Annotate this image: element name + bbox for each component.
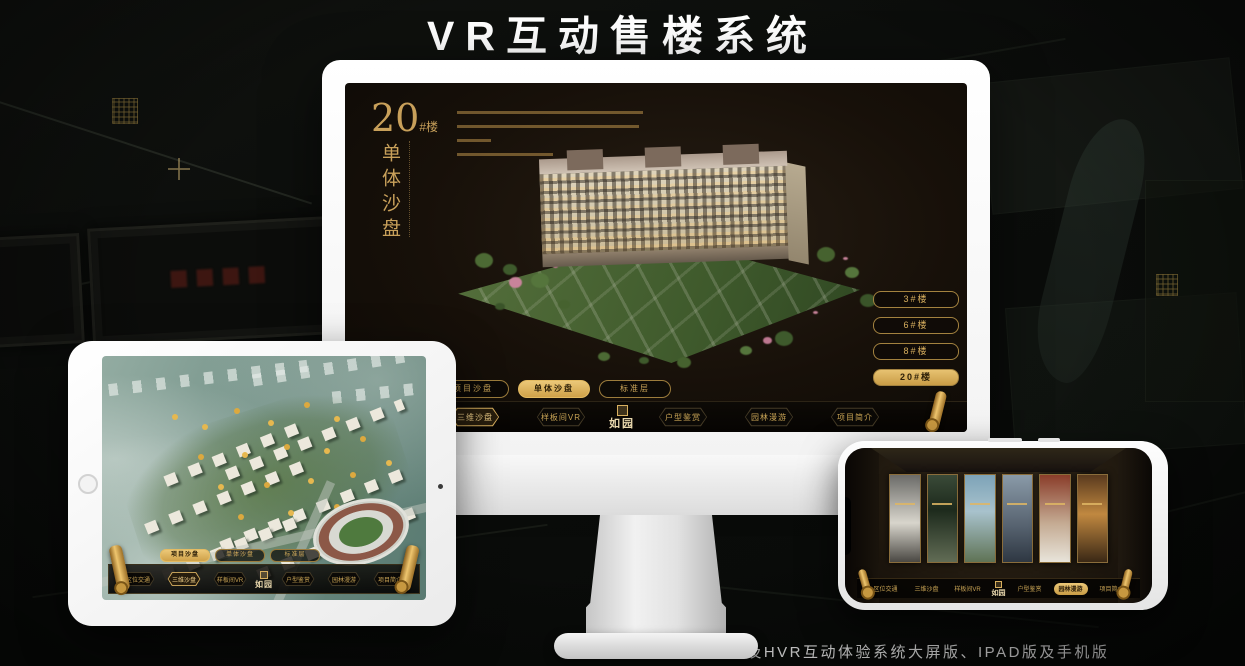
poster-panel[interactable] — [1039, 474, 1071, 563]
view-tab[interactable]: 标准层 — [599, 380, 671, 398]
seal-icon — [260, 571, 268, 579]
brand-logo-text: 如园 — [609, 418, 635, 429]
roof-tower — [645, 146, 682, 167]
view-tab[interactable]: 单体沙盘 — [518, 380, 590, 398]
building-number-badges — [172, 414, 178, 420]
bg-certificate-plaque — [87, 215, 349, 346]
bg-road-line — [0, 98, 312, 205]
menu-item[interactable]: 项目简介 — [827, 407, 883, 427]
plaque-seal-marks — [170, 266, 265, 288]
brand-logo: 如园 — [992, 581, 1006, 596]
garden-bushes — [475, 253, 493, 268]
menu-group-left: 区位交通三维沙盘样板间VR — [119, 572, 249, 587]
menu-item[interactable]: 三维沙盘 — [165, 572, 203, 587]
view-tab[interactable]: 项目沙盘 — [160, 549, 210, 562]
phone-device: 区位交通三维沙盘样板间VR 如园 户型鉴赏园林漫游项目简介 — [838, 441, 1168, 610]
qr-code-icon — [1156, 274, 1178, 296]
menu-item-label: 项目简介 — [837, 412, 873, 423]
heading-divider — [409, 141, 410, 237]
menu-group-right: 户型鉴赏园林漫游项目简介 — [1013, 583, 1129, 595]
poster-panel[interactable] — [964, 474, 996, 563]
floor-button[interactable]: 20#楼 — [873, 369, 959, 386]
monitor-stand-neck — [586, 515, 726, 637]
view-tabs: 项目沙盘单体沙盘标准层 — [437, 380, 671, 398]
menu-item[interactable]: 样板间VR — [951, 583, 985, 595]
menu-item[interactable]: 样板间VR — [211, 572, 249, 587]
menu-item[interactable]: 园林漫游 — [741, 407, 797, 427]
phone-menu-bar: 区位交通三维沙盘样板间VR 如园 户型鉴赏园林漫游项目简介 — [857, 578, 1140, 598]
power-button[interactable] — [1038, 438, 1060, 442]
interior-ceiling-beam — [871, 448, 1126, 472]
menu-item-label: 区位交通 — [873, 584, 897, 593]
ipad-screen-aerial-view[interactable]: 项目沙盘单体沙盘标准层 区位交通三维沙盘样板间VR 如园 户型鉴赏园林漫游项目简… — [102, 356, 426, 600]
menu-item-label: 园林漫游 — [332, 575, 356, 584]
flower-bushes — [509, 277, 522, 288]
menu-item-label: 户型鉴赏 — [286, 575, 310, 584]
phone-screen-interior-view[interactable]: 区位交通三维沙盘样板间VR 如园 户型鉴赏园林漫游项目简介 — [845, 448, 1152, 603]
brand-logo: 如园 — [255, 571, 273, 588]
floor-button[interactable]: 8#楼 — [873, 343, 959, 360]
menu-item-label: 样板间VR — [217, 575, 243, 584]
menu-group-left: 区位交通三维沙盘样板间VR — [869, 583, 985, 595]
home-button[interactable] — [78, 474, 98, 494]
brand-logo-text: 如园 — [255, 580, 273, 588]
menu-item[interactable]: 园林漫游 — [325, 572, 363, 587]
floor-button[interactable]: 6#楼 — [873, 317, 959, 334]
bg-certificate-plaque — [0, 233, 85, 349]
menu-item[interactable]: 户型鉴赏 — [655, 407, 711, 427]
menu-item[interactable]: 户型鉴赏 — [279, 572, 317, 587]
page-title: VR互动售楼系统 — [0, 2, 1245, 62]
camera-dot-icon — [438, 484, 443, 489]
apartment-building-model — [539, 151, 791, 280]
building-side-face — [785, 162, 809, 264]
poster-panels — [889, 474, 1108, 563]
poster-panel[interactable] — [1077, 474, 1109, 563]
volume-button[interactable] — [988, 438, 1022, 442]
ipad-device: 项目沙盘单体沙盘标准层 区位交通三维沙盘样板间VR 如园 户型鉴赏园林漫游项目简… — [68, 341, 456, 626]
brand-logo-text: 如园 — [992, 589, 1006, 596]
floor-button[interactable]: 3#楼 — [873, 291, 959, 308]
brand-logo: 如园 — [609, 405, 635, 429]
roof-tower — [723, 144, 760, 165]
menu-item-label: 户型鉴赏 — [1017, 584, 1041, 593]
menu-item-label: 户型鉴赏 — [665, 412, 701, 423]
building-number-suffix: #楼 — [419, 120, 438, 134]
menu-item-label: 三维沙盘 — [172, 575, 196, 584]
menu-group-right: 户型鉴赏园林漫游项目简介 — [279, 572, 409, 587]
roof-tower — [567, 149, 604, 170]
menu-item-label: 样板间VR — [954, 584, 980, 593]
menu-item[interactable]: 户型鉴赏 — [1013, 583, 1047, 595]
menu-item[interactable]: 园林漫游 — [1054, 583, 1088, 595]
menu-item-label: 样板间VR — [541, 412, 581, 423]
building-facade-windows — [540, 166, 791, 255]
sparkle-icon — [168, 158, 190, 180]
phone-notch — [845, 497, 851, 555]
ipad-menu-bar: 区位交通三维沙盘样板间VR 如园 户型鉴赏园林漫游项目简介 — [108, 564, 420, 594]
menu-item-label: 园林漫游 — [751, 412, 787, 423]
building-3d-scene[interactable] — [445, 149, 875, 365]
view-tab[interactable]: 标准层 — [270, 549, 320, 562]
poster-panel[interactable] — [889, 474, 921, 563]
menu-item-label: 区位交通 — [126, 575, 150, 584]
menu-item-label: 三维沙盘 — [457, 412, 493, 423]
stage: VR互动售楼系统 20#楼 单体沙盘 — [0, 0, 1245, 666]
ipad-view-tabs: 项目沙盘单体沙盘标准层 — [160, 549, 320, 562]
qr-code-icon — [112, 98, 138, 124]
poster-panel[interactable] — [1002, 474, 1034, 563]
seal-icon — [995, 581, 1002, 588]
menu-group-right: 户型鉴赏园林漫游项目简介 — [655, 407, 883, 427]
building-subtitle: 单体沙盘 — [377, 143, 404, 243]
floor-button-group: 3#楼6#楼8#楼20#楼 — [873, 291, 959, 386]
menu-item[interactable]: 三维沙盘 — [910, 583, 944, 595]
monitor-stand-base — [554, 633, 758, 659]
view-tab[interactable]: 单体沙盘 — [215, 549, 265, 562]
building-number: 20 — [371, 96, 419, 140]
poster-panel[interactable] — [927, 474, 959, 563]
seal-icon — [617, 405, 628, 416]
menu-item-label: 园林漫游 — [1058, 584, 1082, 593]
menu-item-label: 三维沙盘 — [914, 584, 938, 593]
menu-item[interactable]: 样板间VR — [533, 407, 589, 427]
building-heading: 20#楼 单体沙盘 — [371, 99, 438, 243]
